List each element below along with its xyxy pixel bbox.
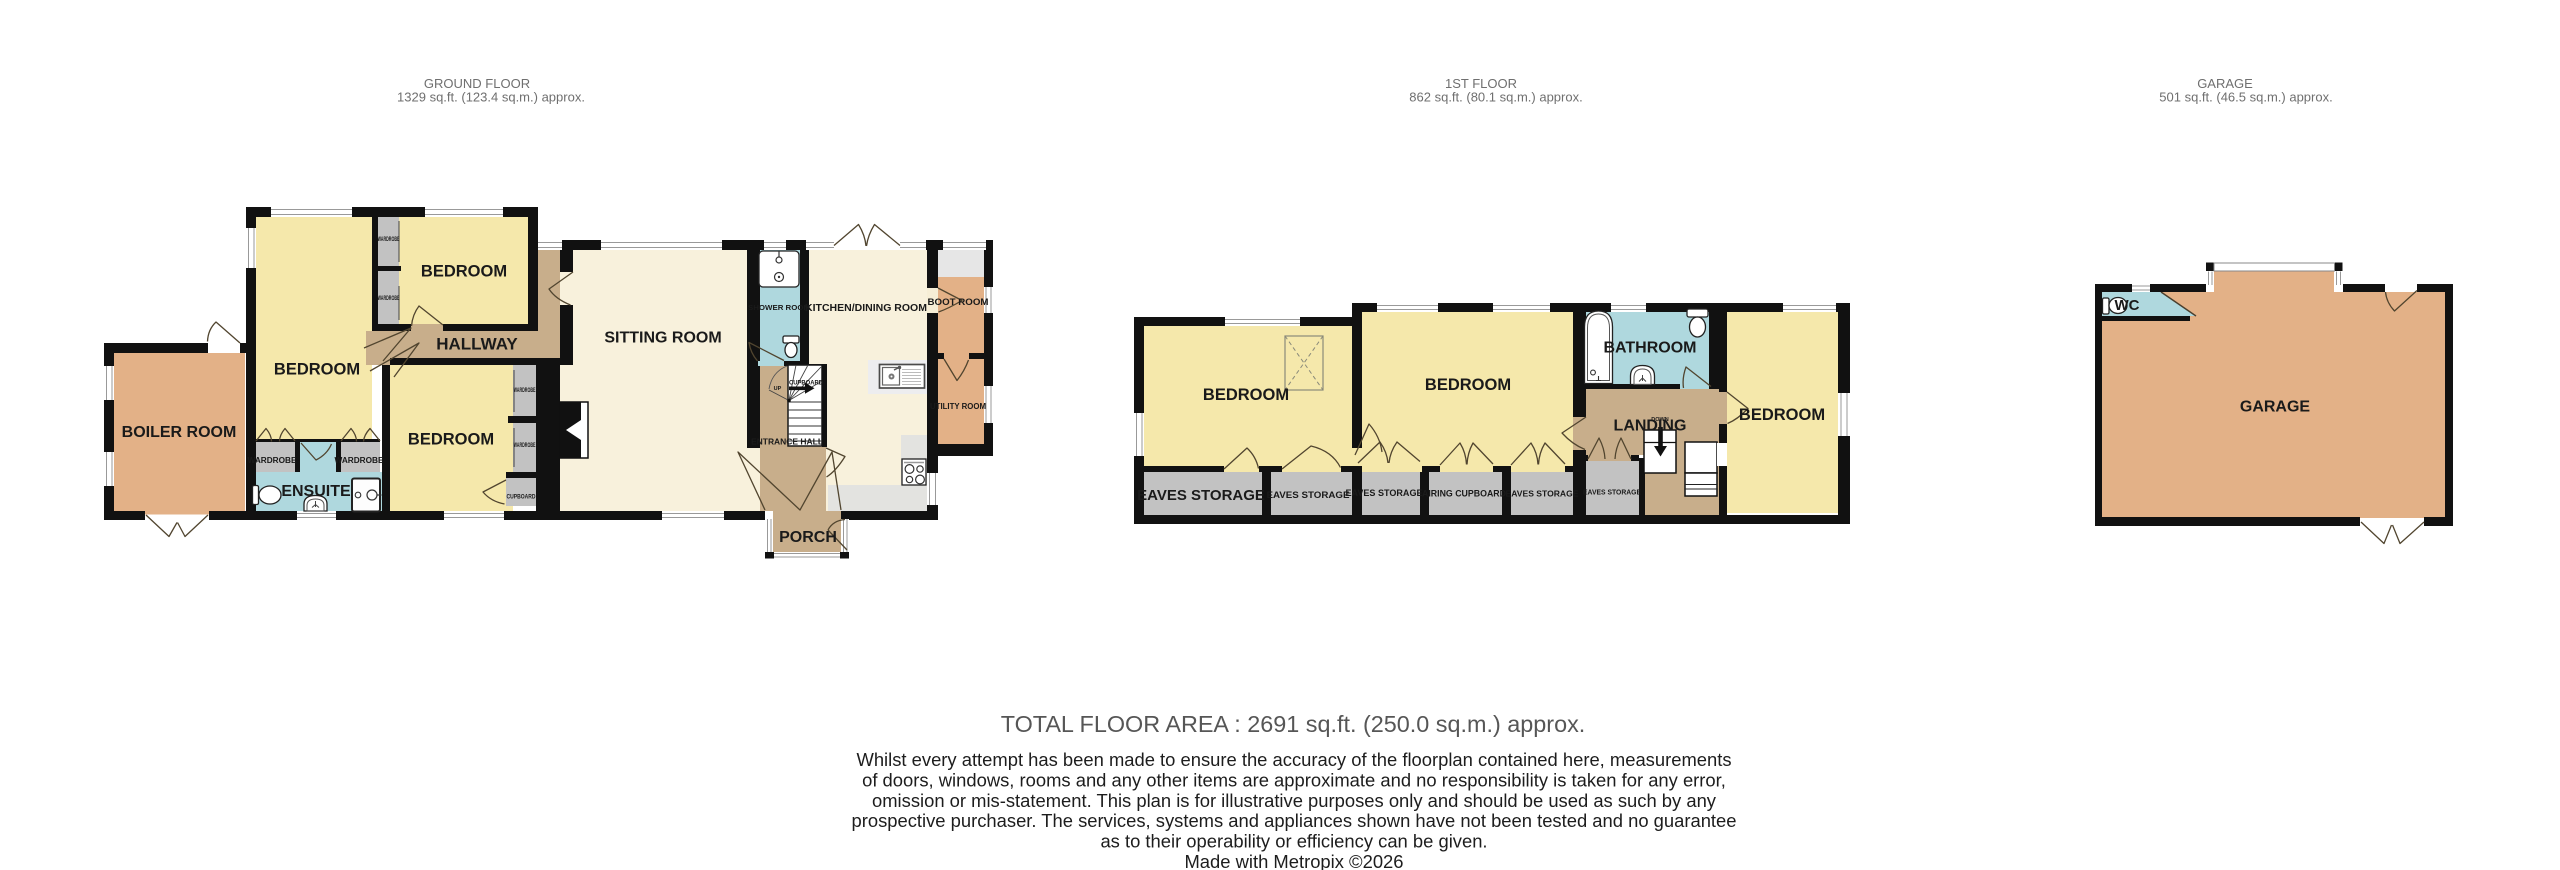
- svg-text:EAVES STORAGE: EAVES STORAGE: [1346, 488, 1423, 498]
- svg-text:LANDING: LANDING: [1614, 418, 1687, 435]
- svg-text:WC: WC: [2115, 297, 2140, 314]
- svg-text:BEDROOM: BEDROOM: [1739, 406, 1825, 424]
- svg-text:AIRING CUPBOARD: AIRING CUPBOARD: [1422, 489, 1506, 499]
- svg-text:Whilst every attempt has been: Whilst every attempt has been made to en…: [856, 749, 1731, 770]
- svg-text:UTILITY ROOM: UTILITY ROOM: [930, 402, 986, 411]
- svg-text:WARDROBE: WARDROBE: [335, 456, 385, 465]
- svg-text:EAVES STORAGE: EAVES STORAGE: [1137, 487, 1265, 504]
- svg-text:EAVES STORAGE: EAVES STORAGE: [1267, 490, 1350, 501]
- svg-text:BEDROOM: BEDROOM: [408, 431, 494, 449]
- svg-text:UP: UP: [774, 386, 782, 392]
- svg-text:BEDROOM: BEDROOM: [274, 361, 360, 379]
- svg-text:1329 sq.ft. (123.4 sq.m.) appr: 1329 sq.ft. (123.4 sq.m.) approx.: [397, 90, 585, 105]
- svg-text:EAVES STORAGE: EAVES STORAGE: [1506, 489, 1579, 499]
- svg-text:WARDROBE: WARDROBE: [514, 387, 536, 394]
- svg-text:BATHROOM: BATHROOM: [1603, 340, 1696, 357]
- svg-text:ENSUITE: ENSUITE: [281, 483, 351, 500]
- svg-text:PORCH: PORCH: [779, 529, 837, 546]
- svg-text:Made with Metropix ©2026: Made with Metropix ©2026: [1184, 851, 1403, 870]
- svg-text:TOTAL FLOOR AREA : 2691 sq.ft.: TOTAL FLOOR AREA : 2691 sq.ft. (250.0 sq…: [1001, 711, 1586, 737]
- svg-text:GARAGE: GARAGE: [2240, 399, 2311, 416]
- svg-text:SITTING ROOM: SITTING ROOM: [604, 330, 721, 347]
- svg-text:EAVES STORAGE: EAVES STORAGE: [1583, 490, 1641, 497]
- svg-text:of doors, windows, rooms and a: of doors, windows, rooms and any other i…: [862, 769, 1726, 790]
- svg-text:ENTRANCE HALL: ENTRANCE HALL: [751, 437, 823, 447]
- svg-text:as to their operability or eff: as to their operability or efficiency ca…: [1100, 831, 1487, 852]
- svg-text:CUPBOARD: CUPBOARD: [507, 495, 537, 501]
- svg-text:KITCHEN/DINING ROOM: KITCHEN/DINING ROOM: [805, 302, 927, 314]
- svg-text:CUPBOARD: CUPBOARD: [789, 381, 824, 387]
- svg-text:prospective purchaser. The ser: prospective purchaser. The services, sys…: [851, 810, 1736, 831]
- svg-text:HALLWAY: HALLWAY: [436, 335, 518, 354]
- svg-text:BOOT ROOM: BOOT ROOM: [928, 297, 989, 308]
- svg-text:501 sq.ft. (46.5 sq.m.) approx: 501 sq.ft. (46.5 sq.m.) approx.: [2159, 90, 2332, 105]
- svg-text:WARDROBE: WARDROBE: [378, 236, 400, 243]
- svg-text:862 sq.ft. (80.1 sq.m.) approx: 862 sq.ft. (80.1 sq.m.) approx.: [1409, 90, 1582, 105]
- svg-text:WARDROBE: WARDROBE: [514, 442, 536, 449]
- svg-text:WARDROBE: WARDROBE: [248, 456, 298, 465]
- svg-text:BEDROOM: BEDROOM: [421, 263, 507, 281]
- svg-text:BOILER ROOM: BOILER ROOM: [122, 424, 237, 441]
- svg-text:SHOWER ROOM: SHOWER ROOM: [748, 303, 810, 312]
- svg-text:omission or mis-statement. Thi: omission or mis-statement. This plan is …: [872, 790, 1717, 811]
- svg-text:BEDROOM: BEDROOM: [1425, 376, 1511, 394]
- svg-text:WARDROBE: WARDROBE: [378, 295, 400, 302]
- svg-text:BEDROOM: BEDROOM: [1203, 386, 1289, 404]
